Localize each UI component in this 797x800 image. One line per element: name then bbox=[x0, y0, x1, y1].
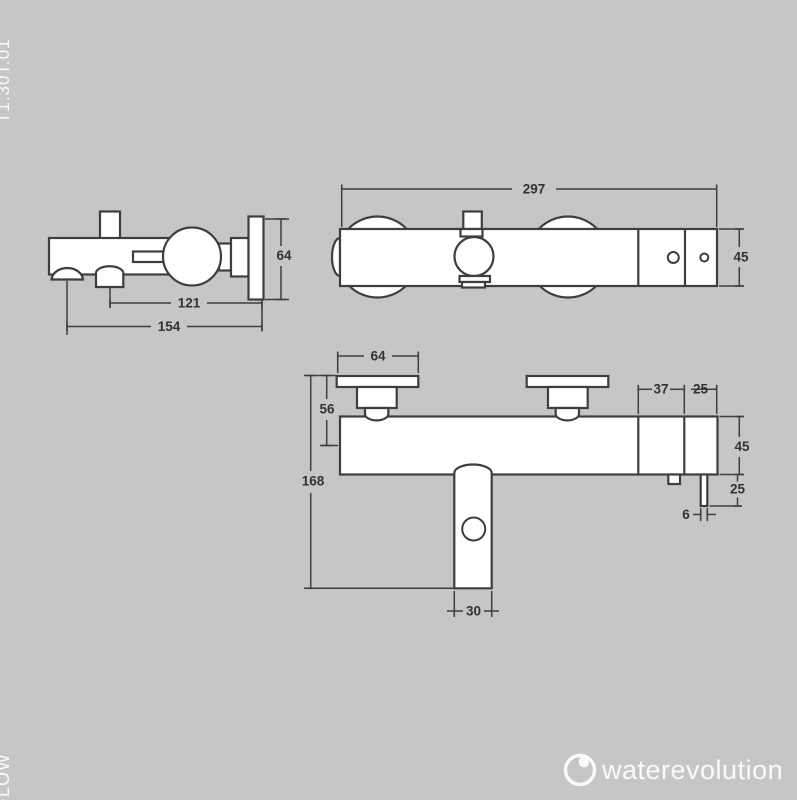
dim-front-56: 56 bbox=[304, 376, 338, 446]
top-diverter-flange bbox=[461, 229, 483, 237]
front-right-wall-plate bbox=[527, 376, 609, 387]
top-view: 297 45 bbox=[332, 182, 749, 298]
front-spout bbox=[454, 464, 491, 588]
dim-label-front-37: 37 bbox=[653, 382, 668, 397]
top-spout-bump bbox=[332, 238, 340, 276]
dim-front-pin-6: 6 bbox=[682, 507, 716, 522]
dim-label-front-30: 30 bbox=[466, 604, 481, 619]
dim-side-154: 154 bbox=[67, 281, 262, 335]
brand-logo: waterevolution bbox=[561, 751, 783, 789]
side-base-block bbox=[231, 238, 249, 277]
dim-label-front-25b: 25 bbox=[730, 482, 746, 497]
front-fixing-pin bbox=[701, 475, 708, 507]
top-diverter-knob bbox=[463, 212, 482, 230]
front-right-neck bbox=[548, 387, 588, 408]
dim-top-45: 45 bbox=[719, 229, 749, 286]
side-view: 64 121 154 bbox=[49, 212, 292, 336]
dim-front-64: 64 bbox=[338, 349, 419, 374]
dimensional-drawing: 64 121 154 bbox=[0, 0, 797, 800]
dim-front-pin-25: 25 bbox=[710, 475, 746, 507]
dim-label-front-45: 45 bbox=[734, 439, 750, 454]
side-handle-ball bbox=[163, 228, 221, 286]
dim-label-front-64: 64 bbox=[370, 349, 386, 364]
dim-label-top-297: 297 bbox=[523, 182, 546, 197]
dim-front-37-25: 37 25 bbox=[638, 382, 716, 415]
brand-name: waterevolution bbox=[602, 755, 783, 786]
dim-label-front-6: 6 bbox=[682, 507, 690, 522]
dim-top-297: 297 bbox=[342, 182, 717, 228]
front-left-wall-plate bbox=[337, 376, 419, 387]
dim-label-front-56: 56 bbox=[319, 402, 335, 417]
front-view: 64 56 168 bbox=[302, 349, 750, 619]
front-left-connector bbox=[365, 408, 388, 420]
side-wall-plate bbox=[249, 217, 264, 300]
top-handle-ball bbox=[455, 237, 494, 276]
dim-label-side-121: 121 bbox=[178, 296, 201, 311]
front-left-neck bbox=[357, 387, 397, 408]
top-body bbox=[340, 229, 717, 286]
front-right-connector bbox=[556, 408, 579, 420]
water-drop-ring-icon bbox=[561, 751, 599, 789]
dim-side-121: 121 bbox=[110, 288, 262, 332]
side-pull-knob bbox=[96, 266, 123, 287]
dim-front-30: 30 bbox=[447, 591, 499, 619]
dim-side-plate-64: 64 bbox=[265, 219, 292, 300]
dim-label-side-154: 154 bbox=[158, 319, 181, 334]
dim-label-front-25a: 25 bbox=[693, 382, 709, 397]
dim-front-45: 45 bbox=[720, 417, 750, 475]
technical-drawing-sheet: T1.30T.01 FLOW 64 bbox=[0, 0, 797, 800]
dim-label-side-64: 64 bbox=[276, 248, 292, 263]
dim-label-front-168: 168 bbox=[302, 474, 325, 489]
side-diverter-knob bbox=[100, 212, 120, 240]
front-body bbox=[340, 417, 718, 475]
top-bracket-lower bbox=[462, 282, 485, 288]
front-bottom-tab bbox=[668, 475, 680, 485]
dim-label-top-45: 45 bbox=[733, 250, 749, 265]
